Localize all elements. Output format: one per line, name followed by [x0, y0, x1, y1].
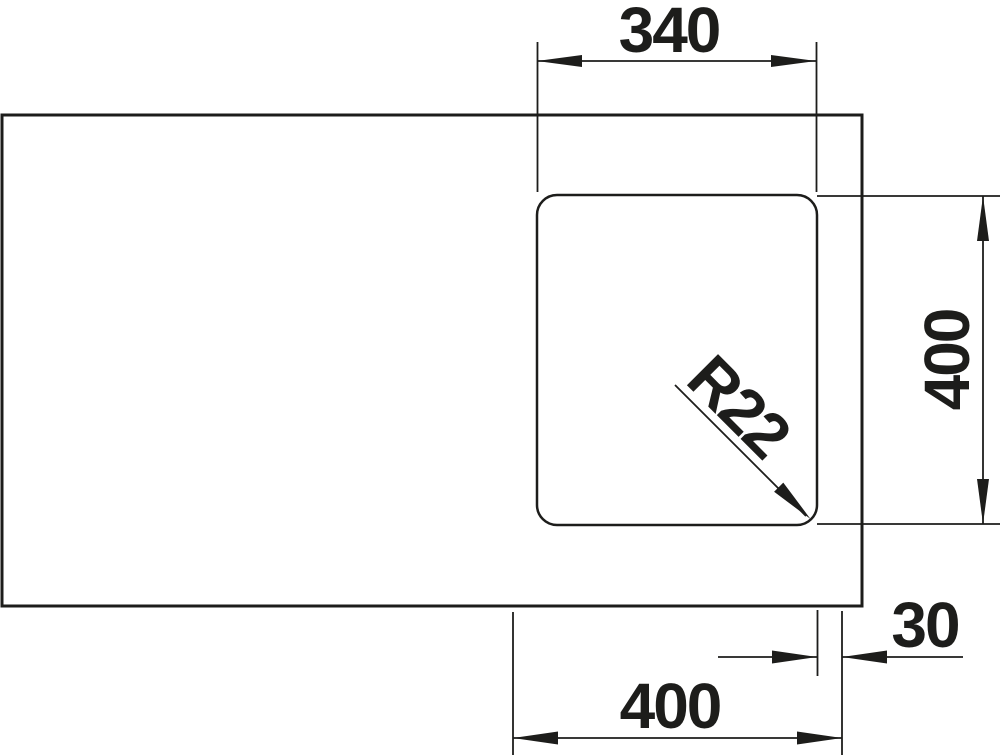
dim-label-edge-offset: 30 [891, 593, 958, 657]
arrow-down-icon [977, 479, 989, 524]
arrow-left-icon [537, 55, 582, 67]
dim-label-bowl-depth: 400 [915, 310, 979, 411]
dim-label-bowl-width: 340 [619, 0, 720, 62]
arrow-right-icon [797, 732, 842, 745]
arrow-right-icon [772, 651, 817, 664]
bowl-outline [537, 195, 817, 525]
dim-label-cutout-width: 400 [620, 674, 721, 738]
arrow-diagonal-icon [774, 483, 810, 519]
technical-drawing: 340 400 R22 30 400 [0, 0, 1000, 755]
arrow-right-icon [771, 55, 816, 67]
arrow-left-icon [513, 732, 558, 745]
arrow-up-icon [977, 196, 989, 241]
drawing-linework [0, 0, 1000, 755]
arrow-left-icon [842, 651, 887, 664]
